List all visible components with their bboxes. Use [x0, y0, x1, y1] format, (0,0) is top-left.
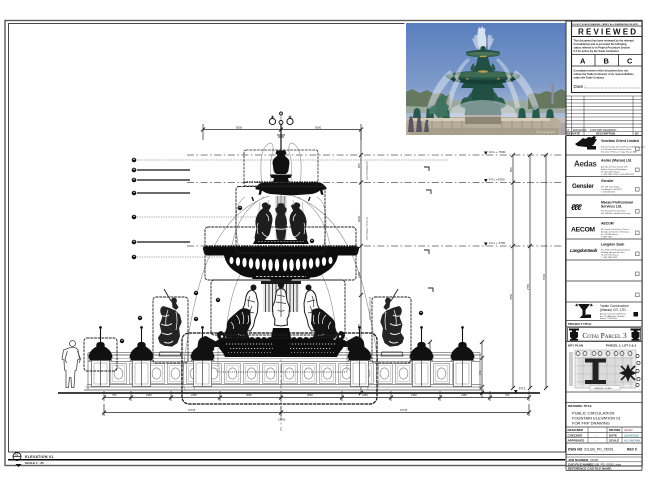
svg-text:F.F.L + 4750: F.F.L + 4750	[489, 241, 506, 245]
svg-text:F.F.L + 7600: F.F.L + 7600	[489, 150, 506, 154]
svg-text:950: 950	[357, 163, 361, 168]
svg-text:No. 458 Edf. Industrial Pou Fu: No. 458 Edf. Industrial Pou Fung	[601, 212, 630, 215]
svg-text:KEY PLAN: KEY PLAN	[568, 344, 583, 348]
svg-text:DWG NO: DWG NO	[568, 448, 583, 452]
svg-text:GRAPHIC SCALE: GRAPHIC SCALE	[594, 387, 612, 390]
svg-text:F.F.L.: F.F.L.	[519, 387, 527, 391]
svg-text:FOR FRP DRAWING: FOR FRP DRAWING	[590, 128, 616, 132]
svg-text:T 213.628.2100: T 213.628.2100	[601, 192, 616, 194]
svg-text:FOR FRP DRAWING: FOR FRP DRAWING	[572, 421, 610, 426]
svg-text:Langdon Seah: Langdon Seah	[601, 243, 624, 247]
svg-text:A: A	[580, 57, 586, 66]
svg-text:01: 01	[15, 453, 19, 457]
svg-text:Gensler: Gensler	[601, 179, 614, 183]
svg-text:DRAWN: DRAWN	[609, 428, 620, 432]
svg-text:(Macau) CO. LTD.: (Macau) CO. LTD.	[600, 308, 627, 312]
svg-text:©Copyrighted: ©Copyrighted	[536, 130, 555, 134]
svg-text:ELEVATION 01: ELEVATION 01	[25, 455, 54, 459]
svg-text:1950: 1950	[146, 393, 152, 397]
svg-text:PARCEL 1, LOT 2 & 3: PARCEL 1, LOT 2 & 3	[606, 344, 637, 348]
svg-text:AECOM: AECOM	[601, 222, 614, 226]
svg-text:2450: 2450	[191, 393, 197, 397]
svg-text:REV 0: REV 0	[627, 448, 637, 452]
svg-text:relieve the Trade Contractor o: relieve the Trade Contractor of its resp…	[574, 72, 635, 76]
svg-text:REFERENCE CAD FILE NAME:: REFERENCE CAD FILE NAME:	[568, 466, 612, 470]
svg-text:31105: 31105	[590, 458, 598, 462]
svg-text:AECOM: AECOM	[571, 227, 595, 234]
svg-text:CHAD: CHAD	[624, 428, 633, 432]
svg-text:SCALE: SCALE	[609, 439, 619, 443]
svg-text:1490: 1490	[357, 271, 361, 278]
svg-text:2450: 2450	[362, 393, 368, 397]
svg-text:F.F.L +6750: F.F.L +6750	[489, 178, 505, 182]
svg-text:Venetian Orient Limited: Venetian Orient Limited	[601, 139, 639, 143]
svg-text:2000: 2000	[357, 215, 361, 222]
svg-text:T +853 2833 3028: T +853 2833 3028	[601, 257, 618, 259]
svg-text:This document has been reviewe: This document has been reviewed by the r…	[574, 39, 634, 43]
svg-text:SCALE 1 : 25: SCALE 1 : 25	[25, 461, 44, 465]
svg-text:2750: 2750	[526, 283, 530, 290]
svg-text:B: B	[604, 57, 610, 66]
svg-text:JOB NUMBER:: JOB NUMBER:	[568, 458, 589, 462]
svg-text:REVIEWED: REVIEWED	[578, 28, 638, 37]
svg-text:DRAWING TITLE: DRAWING TITLE	[568, 404, 592, 408]
svg-text:750: 750	[505, 393, 510, 397]
svg-text:5.4 for action by the Trade Co: 5.4 for action by the Trade Contractor.	[574, 49, 620, 53]
svg-text:T 2833 1309: T 2833 1309	[601, 237, 613, 239]
svg-text:4750: 4750	[509, 293, 513, 300]
svg-text:850: 850	[509, 167, 513, 172]
svg-text:-: -	[596, 433, 597, 437]
svg-text:750: 750	[112, 393, 117, 397]
svg-text:DO NOT SCALE DRAWING. VERIFY A: DO NOT SCALE DRAWING. VERIFY ALL DIMENSI…	[573, 23, 639, 26]
svg-text:Consultant review of this docu: Consultant review of this document does …	[574, 69, 629, 73]
svg-text:1950: 1950	[411, 393, 417, 397]
svg-text:CHECKED: CHECKED	[568, 433, 584, 437]
svg-text:Aedas (Macau) Ltd.: Aedas (Macau) Ltd.	[601, 159, 632, 163]
svg-text:10/04/2010: 10/04/2010	[573, 128, 587, 132]
svg-text:under the Trade Contract.: under the Trade Contract.	[574, 76, 605, 80]
svg-text:21450: 21450	[278, 418, 286, 422]
svg-text:10725: 10725	[400, 408, 408, 412]
svg-text:C: C	[627, 57, 633, 66]
svg-text:10/04/2010: 10/04/2010	[624, 433, 639, 437]
svg-text:2450: 2450	[461, 393, 467, 397]
svg-text:10725: 10725	[188, 408, 196, 412]
svg-text:5500: 5500	[236, 125, 243, 129]
svg-text:status referred to in Projec: status referred to in Project Procedure …	[574, 46, 631, 50]
svg-text:Cotai Parcel 3: Cotai Parcel 3	[582, 331, 627, 340]
svg-text:FRP PANEL TYPE 01: FRP PANEL TYPE 01	[366, 216, 369, 240]
svg-text:3050: 3050	[307, 393, 313, 397]
svg-text:: 311UB_PD_05001: : 311UB_PD_05001	[582, 448, 614, 452]
svg-text:DESIGNED: DESIGNED	[568, 428, 585, 432]
svg-text:Gensler: Gensler	[572, 183, 594, 190]
svg-text:FRP ORNAMENT: FRP ORNAMENT	[366, 160, 369, 180]
svg-text:AS SHOWN: AS SHOWN	[624, 439, 640, 443]
svg-text:DATE: DATE	[609, 433, 617, 437]
svg-text:5500: 5500	[315, 125, 322, 129]
svg-text:3050: 3050	[246, 393, 252, 397]
svg-text:PROJECT TITLE: PROJECT TITLE	[568, 322, 591, 326]
svg-text:Date :: Date :	[574, 84, 586, 89]
svg-text:Services Ltd.: Services Ltd.	[601, 205, 622, 209]
svg-text:T +853 2833 1113 F +853 2833: T +853 2833 1113 F +853 2833 1990	[601, 174, 635, 176]
svg-text:APPROVED: APPROVED	[568, 439, 586, 443]
svg-text:LangdonSeah: LangdonSeah	[570, 248, 598, 253]
svg-text:Macau, T 2828 3101: Macau, T 2828 3101	[600, 318, 617, 320]
svg-text:Aedas: Aedas	[574, 160, 597, 169]
svg-text:Consultant(s) and is accorded: Consultant(s) and is accorded the follow…	[574, 42, 627, 46]
svg-text:7600: 7600	[542, 273, 546, 280]
svg-text:-: -	[596, 439, 597, 443]
svg-text:Executive Offices-L2, Taipa, M: Executive Offices-L2, Taipa, Macau SAR	[601, 151, 637, 154]
